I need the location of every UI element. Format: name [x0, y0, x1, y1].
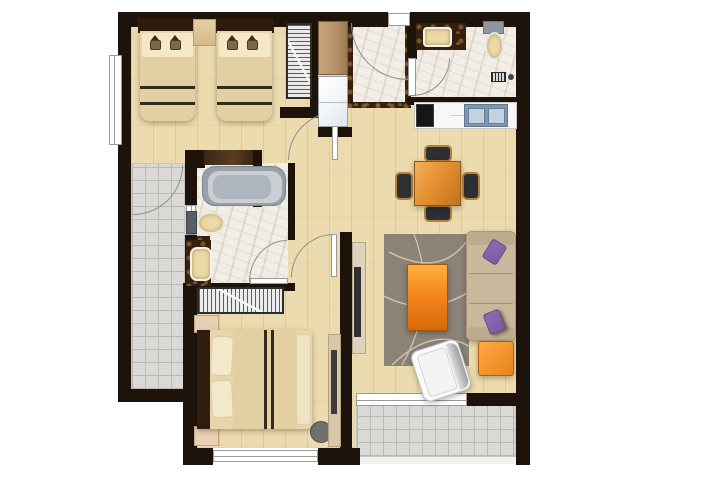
- blanket-stripe: [140, 102, 195, 105]
- bed-double-headboard: [197, 330, 210, 429]
- sink-basin-right: [488, 108, 505, 124]
- toilet2-tank: [186, 211, 197, 234]
- wall-corridor-top: [280, 107, 318, 118]
- sink-basin-left: [468, 108, 485, 124]
- dining-chair-left: [395, 172, 413, 200]
- master-door-leaf: [331, 234, 337, 277]
- dining-chair-bottom: [424, 205, 452, 222]
- bed-decor-icon: [247, 35, 258, 50]
- drain-valve-icon: [508, 74, 514, 80]
- bed-double-pillow-2: [210, 379, 234, 418]
- tv-panel: [354, 267, 361, 337]
- blanket-stripe: [217, 102, 272, 105]
- kitchen-sink: [464, 104, 508, 127]
- wall-bottom-a: [183, 448, 213, 465]
- nightstand-bottom: [194, 426, 219, 446]
- ottoman: [478, 341, 514, 376]
- blanket-stripe: [140, 86, 195, 89]
- bathroom1-sink: [423, 27, 452, 47]
- bedside-shelf: [193, 19, 216, 46]
- wall-balcony2-top: [467, 393, 516, 406]
- wardrobe-bedroom1: [286, 23, 312, 99]
- bathroom2-door-leaf: [250, 278, 288, 284]
- bed-double-duvet-end: [296, 334, 311, 425]
- bathtub: [202, 166, 286, 206]
- rear-balcony-floor: [356, 405, 516, 457]
- dining-table: [414, 161, 461, 206]
- dining-chair-right: [462, 172, 480, 200]
- cooktop: [416, 104, 434, 127]
- wall-balcony1-right-a: [185, 163, 197, 205]
- desk-tv-panel: [331, 350, 337, 414]
- bathtub-shelf: [204, 150, 253, 165]
- washing-machine: [318, 76, 348, 127]
- blanket-fold: [264, 330, 267, 429]
- bed-blanket: [217, 57, 272, 121]
- rear-balcony-edge: [356, 457, 516, 464]
- bathtub-well: [213, 175, 271, 199]
- floor-plan: [0, 0, 720, 479]
- appliance-divider: [319, 102, 347, 103]
- bed-decor-icon: [170, 35, 181, 50]
- window-left: [109, 55, 122, 145]
- bed-double-pillow-1: [210, 335, 234, 376]
- window-master-bedroom: [213, 450, 318, 462]
- blanket-stripe: [217, 86, 272, 89]
- bed-decor-icon: [150, 35, 161, 50]
- dining-chair-top: [424, 145, 452, 162]
- toilet2-bowl: [197, 212, 225, 234]
- wardrobe-master: [197, 287, 284, 314]
- wall-right: [516, 12, 530, 465]
- outside-area: [0, 402, 183, 479]
- bed-blanket: [140, 57, 195, 121]
- sofa-seam: [469, 273, 513, 274]
- toilet1-bowl: [485, 32, 504, 60]
- bed-decor-icon: [227, 35, 238, 50]
- bed-double: [197, 330, 312, 429]
- wall-bottom-b: [318, 448, 360, 465]
- wall-bathroom2-right: [288, 163, 295, 240]
- bathroom2-sink: [190, 247, 212, 281]
- wall-living-divider: [340, 232, 352, 448]
- blanket-fold: [271, 330, 274, 429]
- coffee-table: [407, 264, 448, 331]
- bed-single-2: [217, 31, 272, 121]
- entry-cabinet: [318, 21, 348, 75]
- bed-single-1: [140, 31, 195, 121]
- sofa-seam: [469, 303, 513, 304]
- floor-drain-icon: [491, 72, 506, 82]
